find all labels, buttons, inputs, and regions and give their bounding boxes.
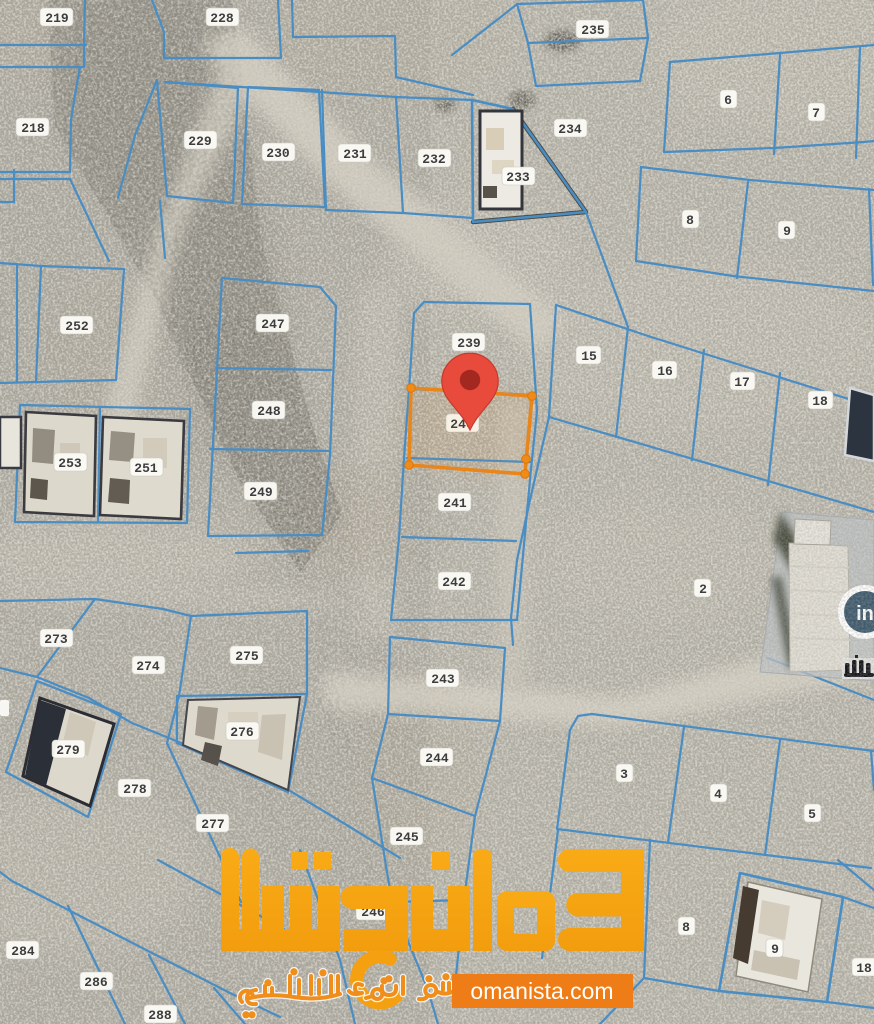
svg-text:241: 241 [443, 496, 467, 511]
svg-text:5: 5 [808, 807, 816, 822]
svg-text:8: 8 [682, 920, 690, 935]
svg-text:276: 276 [230, 725, 254, 740]
svg-text:288: 288 [148, 1008, 172, 1023]
svg-text:17: 17 [734, 375, 750, 390]
svg-text:230: 230 [266, 146, 290, 161]
svg-text:9: 9 [783, 224, 791, 239]
svg-text:273: 273 [44, 632, 68, 647]
svg-text:omanista.com: omanista.com [470, 978, 613, 1004]
svg-text:16: 16 [657, 364, 673, 379]
svg-text:229: 229 [188, 134, 212, 149]
svg-text:234: 234 [558, 122, 582, 137]
svg-text:253: 253 [58, 456, 82, 471]
svg-text:233: 233 [506, 170, 530, 185]
svg-text:7: 7 [812, 106, 820, 121]
svg-text:284: 284 [11, 944, 35, 959]
svg-text:244: 244 [425, 751, 449, 766]
svg-text:279: 279 [56, 743, 80, 758]
svg-text:2: 2 [699, 582, 707, 597]
svg-text:248: 248 [257, 404, 281, 419]
svg-text:249: 249 [249, 485, 273, 500]
svg-text:3: 3 [620, 767, 628, 782]
svg-text:15: 15 [581, 349, 597, 364]
svg-text:219: 219 [45, 11, 69, 26]
svg-text:243: 243 [431, 672, 455, 687]
svg-text:247: 247 [261, 317, 284, 332]
svg-text:232: 232 [422, 152, 446, 167]
svg-text:242: 242 [442, 575, 466, 590]
svg-text:275: 275 [235, 649, 259, 664]
svg-text:286: 286 [84, 975, 108, 990]
svg-text:235: 235 [581, 23, 605, 38]
svg-text:252: 252 [65, 319, 89, 334]
svg-text:228: 228 [210, 11, 234, 26]
svg-text:218: 218 [21, 121, 45, 136]
svg-text:231: 231 [343, 147, 367, 162]
svg-text:239: 239 [457, 336, 481, 351]
svg-text:4: 4 [714, 787, 722, 802]
svg-text:18: 18 [856, 961, 872, 976]
svg-text:274: 274 [136, 659, 160, 674]
svg-text:6: 6 [724, 93, 732, 108]
svg-text:277: 277 [201, 817, 224, 832]
svg-text:8: 8 [686, 213, 694, 228]
svg-text:18: 18 [812, 394, 828, 409]
svg-text:245: 245 [395, 830, 419, 845]
svg-text:9: 9 [771, 942, 779, 957]
svg-text:251: 251 [134, 461, 158, 476]
svg-text:278: 278 [123, 782, 147, 797]
